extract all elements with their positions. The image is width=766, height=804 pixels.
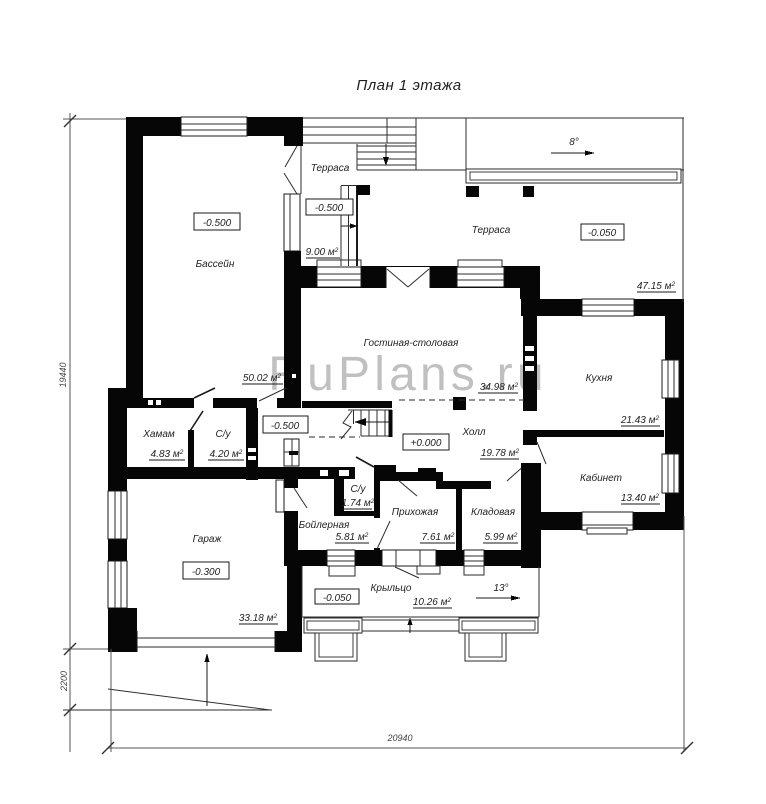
svg-text:-0.300: -0.300 <box>192 567 221 578</box>
svg-text:-0.050: -0.050 <box>588 228 617 239</box>
svg-text:9.00 м2: 9.00 м2 <box>306 247 339 258</box>
svg-text:Терраса: Терраса <box>472 225 511 236</box>
svg-text:19440: 19440 <box>58 362 68 387</box>
svg-text:5.81 м2: 5.81 м2 <box>336 532 369 543</box>
svg-text:Гостиная-столовая: Гостиная-столовая <box>364 338 459 349</box>
svg-text:План 1 этажа: План 1 этажа <box>356 77 461 94</box>
svg-text:50.02 м2: 50.02 м2 <box>243 373 282 384</box>
svg-text:Хамам: Хамам <box>142 429 175 440</box>
svg-text:8°: 8° <box>569 137 579 148</box>
svg-text:4.83 м2: 4.83 м2 <box>151 449 184 460</box>
svg-text:5.99 м2: 5.99 м2 <box>485 532 518 543</box>
svg-text:33.18 м2: 33.18 м2 <box>239 613 278 624</box>
svg-text:Терраса: Терраса <box>311 163 350 174</box>
svg-text:-0.500: -0.500 <box>315 203 344 214</box>
svg-text:С/у: С/у <box>351 484 367 495</box>
svg-text:20940: 20940 <box>386 733 412 743</box>
svg-text:-0.500: -0.500 <box>271 421 300 432</box>
svg-text:Прихожая: Прихожая <box>392 507 439 518</box>
svg-text:Гараж: Гараж <box>193 534 223 545</box>
svg-text:13.40 м2: 13.40 м2 <box>621 493 660 504</box>
svg-text:-0.050: -0.050 <box>323 593 352 604</box>
svg-text:7.61 м2: 7.61 м2 <box>422 532 455 543</box>
svg-text:Холл: Холл <box>461 427 485 438</box>
svg-text:Бассейн: Бассейн <box>196 259 235 270</box>
svg-text:Кухня: Кухня <box>586 373 613 384</box>
svg-text:19.78 м2: 19.78 м2 <box>481 448 520 459</box>
svg-text:13°: 13° <box>493 583 508 594</box>
svg-text:21.43 м2: 21.43 м2 <box>620 415 660 426</box>
svg-text:-0.500: -0.500 <box>203 218 232 229</box>
svg-text:Крыльцо: Крыльцо <box>371 583 412 594</box>
svg-text:Кабинет: Кабинет <box>580 472 622 484</box>
svg-text:34.98 м2: 34.98 м2 <box>480 382 519 393</box>
svg-text:1.74 м2: 1.74 м2 <box>342 498 375 509</box>
svg-text:+0.000: +0.000 <box>411 438 442 449</box>
svg-text:10.26 м2: 10.26 м2 <box>413 597 452 608</box>
svg-text:С/у: С/у <box>216 429 232 440</box>
svg-text:47.15 м2: 47.15 м2 <box>637 281 676 292</box>
svg-text:4.20 м2: 4.20 м2 <box>210 449 243 460</box>
svg-text:Кладовая: Кладовая <box>471 507 516 518</box>
svg-text:Бойлерная: Бойлерная <box>299 520 350 531</box>
svg-text:2200: 2200 <box>59 671 69 692</box>
